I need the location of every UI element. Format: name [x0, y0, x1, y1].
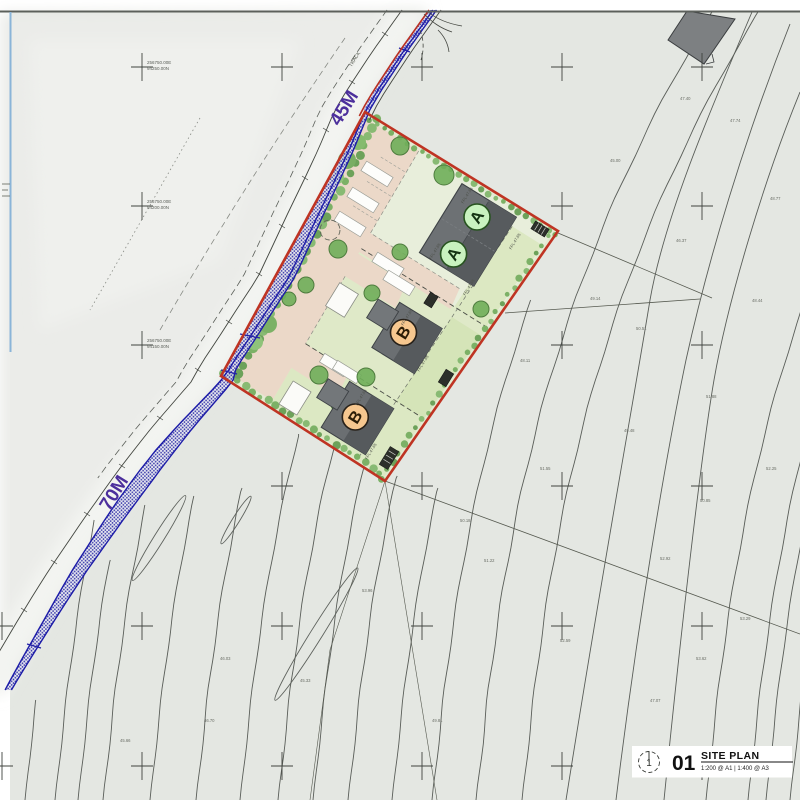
svg-text:52.92: 52.92: [660, 556, 671, 561]
svg-text:46.03: 46.03: [220, 656, 231, 661]
svg-text:51.88: 51.88: [706, 394, 717, 399]
svg-text:94150.00N: 94150.00N: [147, 344, 169, 349]
svg-text:51.55: 51.55: [540, 466, 551, 471]
svg-text:52.59: 52.59: [560, 638, 571, 643]
svg-text:256750.00E: 256750.00E: [147, 199, 171, 204]
svg-text:SITE PLAN: SITE PLAN: [701, 750, 759, 762]
svg-text:47.07: 47.07: [650, 698, 661, 703]
svg-text:256750.00E: 256750.00E: [147, 60, 171, 65]
svg-text:45.33: 45.33: [300, 678, 311, 683]
svg-text:51.22: 51.22: [484, 558, 495, 563]
svg-text:53.96: 53.96: [362, 588, 373, 593]
svg-text:1: 1: [646, 758, 652, 769]
svg-text:53.62: 53.62: [696, 656, 707, 661]
svg-text:94200.00N: 94200.00N: [147, 205, 169, 210]
svg-text:52.25: 52.25: [766, 466, 777, 471]
svg-text:45.00: 45.00: [610, 158, 621, 163]
svg-text:50.51: 50.51: [636, 326, 647, 331]
svg-text:1:200 @ A1 | 1:400 @ A3: 1:200 @ A1 | 1:400 @ A3: [701, 766, 769, 772]
svg-text:01: 01: [672, 752, 696, 775]
svg-text:47.40: 47.40: [680, 96, 691, 101]
svg-text:48.77: 48.77: [770, 196, 781, 201]
svg-text:50.18: 50.18: [460, 518, 471, 523]
svg-text:94250.00N: 94250.00N: [147, 66, 169, 71]
svg-text:53.29: 53.29: [740, 616, 751, 621]
svg-text:48.44: 48.44: [752, 298, 763, 303]
svg-text:50.85: 50.85: [700, 498, 711, 503]
svg-text:45.66: 45.66: [120, 738, 131, 743]
svg-text:46.37: 46.37: [676, 238, 687, 243]
svg-text:49.48: 49.48: [624, 428, 635, 433]
svg-text:256750.00E: 256750.00E: [147, 338, 171, 343]
svg-text:47.74: 47.74: [730, 118, 741, 123]
svg-text:49.81: 49.81: [432, 718, 443, 723]
svg-text:46.70: 46.70: [204, 718, 215, 723]
svg-text:48.11: 48.11: [520, 358, 531, 363]
svg-text:49.14: 49.14: [590, 296, 601, 301]
